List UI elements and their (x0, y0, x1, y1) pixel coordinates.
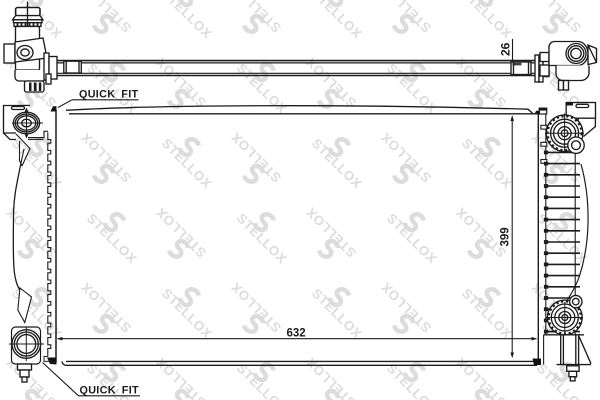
svg-text:QUICKFIT: QUICKFIT (80, 384, 139, 396)
svg-text:QUICKFIT: QUICKFIT (79, 89, 138, 101)
svg-text:632: 632 (287, 328, 306, 340)
svg-text:399: 399 (500, 227, 512, 246)
svg-text:26: 26 (499, 42, 513, 56)
